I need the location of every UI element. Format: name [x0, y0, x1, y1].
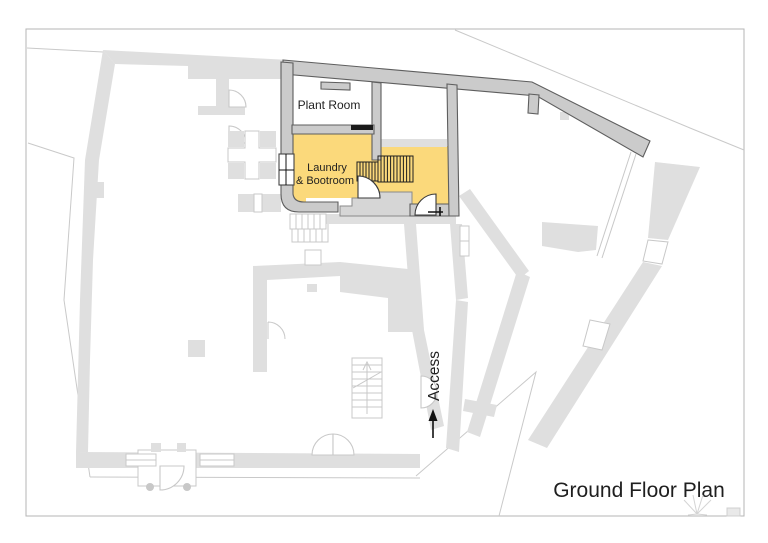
dividing-wall	[372, 82, 381, 160]
entrance-porch	[138, 443, 196, 491]
cross-passage	[228, 131, 276, 179]
floor-plan-page: Plant Room Laundry & Bootroom Access Gro…	[0, 0, 768, 543]
east-wall	[447, 84, 459, 216]
column	[188, 340, 205, 357]
corner-mark	[727, 508, 740, 516]
plant-room-label: Plant Room	[298, 98, 361, 112]
existing-north-wall	[103, 50, 290, 79]
window	[279, 154, 294, 185]
existing-west-wall	[76, 50, 115, 452]
right-room-upper	[378, 85, 450, 143]
double-door	[312, 434, 354, 455]
laundry-label-line2: & Bootroom	[296, 175, 354, 187]
existing-stair-lower	[352, 358, 382, 418]
drawing-title: Ground Floor Plan	[553, 479, 725, 502]
external-steps	[290, 214, 326, 229]
laundry-label-line1: Laundry	[307, 162, 347, 174]
access-label: Access	[426, 351, 443, 401]
ground-floor-plan-drawing: Plant Room Laundry & Bootroom Access Gro…	[0, 0, 768, 543]
